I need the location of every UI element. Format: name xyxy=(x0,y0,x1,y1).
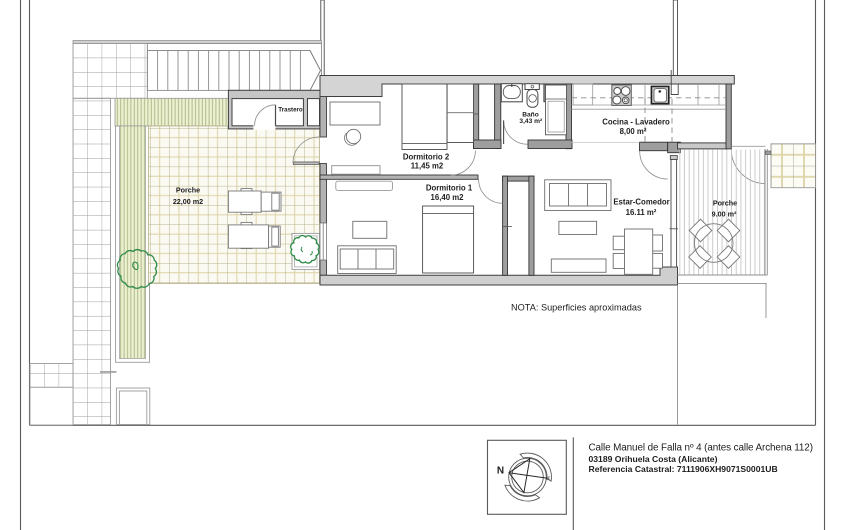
svg-text:9.00 m²: 9.00 m² xyxy=(712,210,737,219)
svg-text:Porche: Porche xyxy=(176,186,200,195)
svg-text:Dormitorio 1: Dormitorio 1 xyxy=(426,184,473,193)
svg-text:8,00 m²: 8,00 m² xyxy=(620,127,647,136)
svg-text:N: N xyxy=(497,466,504,477)
svg-text:Referencia Catastral: 7111906X: Referencia Catastral: 7111906XH9071S0001… xyxy=(589,464,778,474)
svg-text:Dormitorio 2: Dormitorio 2 xyxy=(403,153,450,162)
svg-text:16,40 m2: 16,40 m2 xyxy=(431,193,465,202)
svg-text:16.11 m²: 16.11 m² xyxy=(626,208,657,217)
svg-text:NOTA: Superficies aproximadas: NOTA: Superficies aproximadas xyxy=(511,303,642,313)
svg-text:11,45 m2: 11,45 m2 xyxy=(411,162,444,171)
svg-text:Trastero: Trastero xyxy=(278,107,303,114)
svg-text:03189 Orihuela Costa (Alicante: 03189 Orihuela Costa (Alicante) xyxy=(589,454,718,464)
svg-text:3,43 m²: 3,43 m² xyxy=(519,118,543,125)
svg-text:Calle Manuel de Falla nº 4 (an: Calle Manuel de Falla nº 4 (antes calle … xyxy=(589,442,813,453)
svg-text:Porche: Porche xyxy=(713,199,737,208)
svg-text:Cocina - Lavadero: Cocina - Lavadero xyxy=(602,118,670,127)
svg-text:22,00 m2: 22,00 m2 xyxy=(173,197,203,206)
svg-text:Estar-Comedor: Estar-Comedor xyxy=(613,198,669,207)
